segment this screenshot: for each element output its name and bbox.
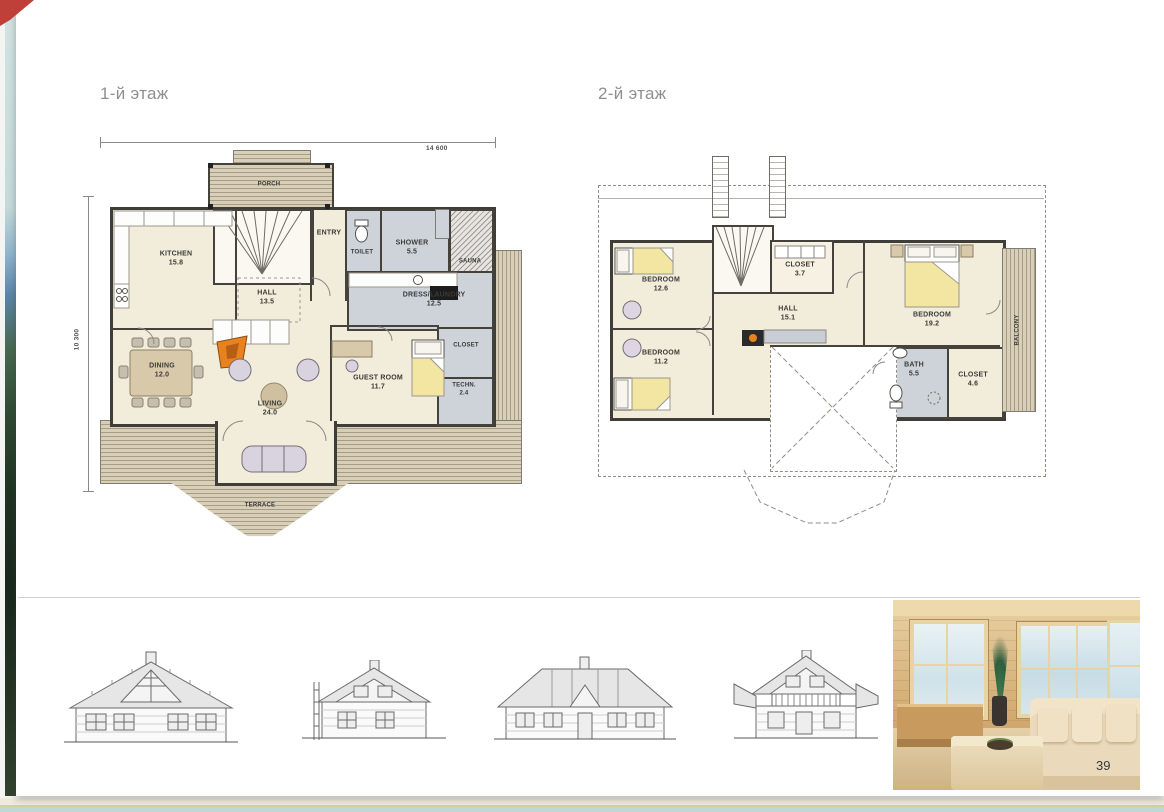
- room-label-bath: BATH5.5: [904, 361, 924, 379]
- bottom-strip-teal: [0, 807, 1164, 812]
- living-bay: [215, 421, 337, 486]
- floor2-title: 2-й этаж: [598, 84, 666, 104]
- dim-tick: [83, 491, 94, 492]
- void-over-living: [770, 345, 897, 472]
- stair2-block: [712, 225, 774, 294]
- wall2-bedroom3-left: [863, 240, 865, 347]
- room-label-balcony: BALCONY: [1014, 314, 1022, 345]
- elevation-4-svg: [732, 650, 880, 745]
- room-label-entry: ENTRY: [317, 230, 341, 239]
- photo-vase: [992, 696, 1007, 726]
- wall2-hall-void: [770, 345, 895, 347]
- floor2-plan: BEDROOM12.6 BEDROOM11.2 HALL15.1 CLOSET3…: [592, 150, 1062, 540]
- elevation-1-svg: [62, 650, 240, 748]
- photo-sofa: [1030, 698, 1140, 790]
- floor1-title: 1-й этаж: [100, 84, 168, 104]
- room-label-toilet: TOILET: [351, 249, 373, 257]
- room-label-techn: TECHN.2.4: [452, 383, 476, 398]
- room-label-kitchen: KITCHEN15.8: [160, 250, 193, 268]
- wall-guest-top: [330, 325, 439, 327]
- dim-tick: [100, 137, 101, 148]
- elevation-2-svg: [300, 660, 448, 745]
- chimney-shaft-2: [769, 156, 786, 218]
- dim-width-label: 14 600: [426, 145, 448, 152]
- wall2-bedrooms-right: [712, 240, 714, 415]
- elevation-drawing-2: [300, 660, 448, 745]
- elevation-drawing-4: [732, 650, 880, 745]
- room-label-bedroom3: BEDROOM19.2: [913, 311, 951, 329]
- room-label-guest: GUEST ROOM11.7: [353, 374, 403, 392]
- catalog-page: { "page": { "number": "39", "titles": { …: [0, 0, 1164, 812]
- room-closet1: [437, 327, 494, 381]
- dim-tick: [495, 137, 496, 148]
- wall-kitchen-right: [235, 209, 237, 329]
- photo-bowl: [987, 740, 1013, 750]
- chimney-shaft-1: [712, 156, 729, 218]
- room-label-bedroom2: BEDROOM11.2: [642, 349, 680, 367]
- dim-line-top: [100, 142, 496, 143]
- floor1-plan: 14 600 10 300: [78, 128, 550, 540]
- room-label-shower: SHOWER5.5: [396, 239, 429, 257]
- page-number: 39: [1096, 758, 1110, 773]
- room-label-living: LIVING24.0: [258, 400, 283, 418]
- dim-tick: [83, 196, 94, 197]
- room-label-porch: PORCH: [258, 181, 281, 189]
- terrace-deck: [170, 482, 350, 539]
- photo-ceiling: [893, 600, 1140, 616]
- room-label-hall2: HALL15.1: [778, 305, 797, 323]
- stair-block: [213, 209, 314, 285]
- wall-guest-left: [330, 325, 332, 421]
- room-label-bedroom1: BEDROOM12.6: [642, 276, 680, 294]
- elevation-drawing-3: [492, 655, 678, 745]
- wall-kitchen-bottom: [110, 328, 237, 330]
- room-label-terrace: TERRACE: [245, 502, 275, 510]
- wall-entry-left: [310, 209, 312, 301]
- dim-height-label: 10 300: [73, 329, 80, 351]
- room-label-closet1: CLOSET: [453, 342, 479, 350]
- dim-line-left: [88, 196, 89, 492]
- room-label-hall: HALL13.5: [257, 289, 276, 307]
- room-label-sauna: SAUNA: [459, 258, 481, 266]
- interior-photo: 39: [893, 600, 1140, 790]
- roof-beam: [598, 198, 1044, 199]
- wall2-bedrooms-divider: [610, 328, 712, 330]
- bottom-strip-beige: [0, 798, 1164, 805]
- elevation-3-svg: [492, 655, 678, 745]
- room-label-dining: DINING12.0: [149, 362, 175, 380]
- section-divider: [18, 597, 1140, 598]
- room-label-closet2f2: CLOSET4.6: [958, 371, 988, 389]
- room-label-closet1f2: CLOSET3.7: [785, 261, 815, 279]
- room-label-dress: DRESS/LAUNDRY12.5: [403, 291, 466, 309]
- elevation-drawing-1: [62, 650, 240, 748]
